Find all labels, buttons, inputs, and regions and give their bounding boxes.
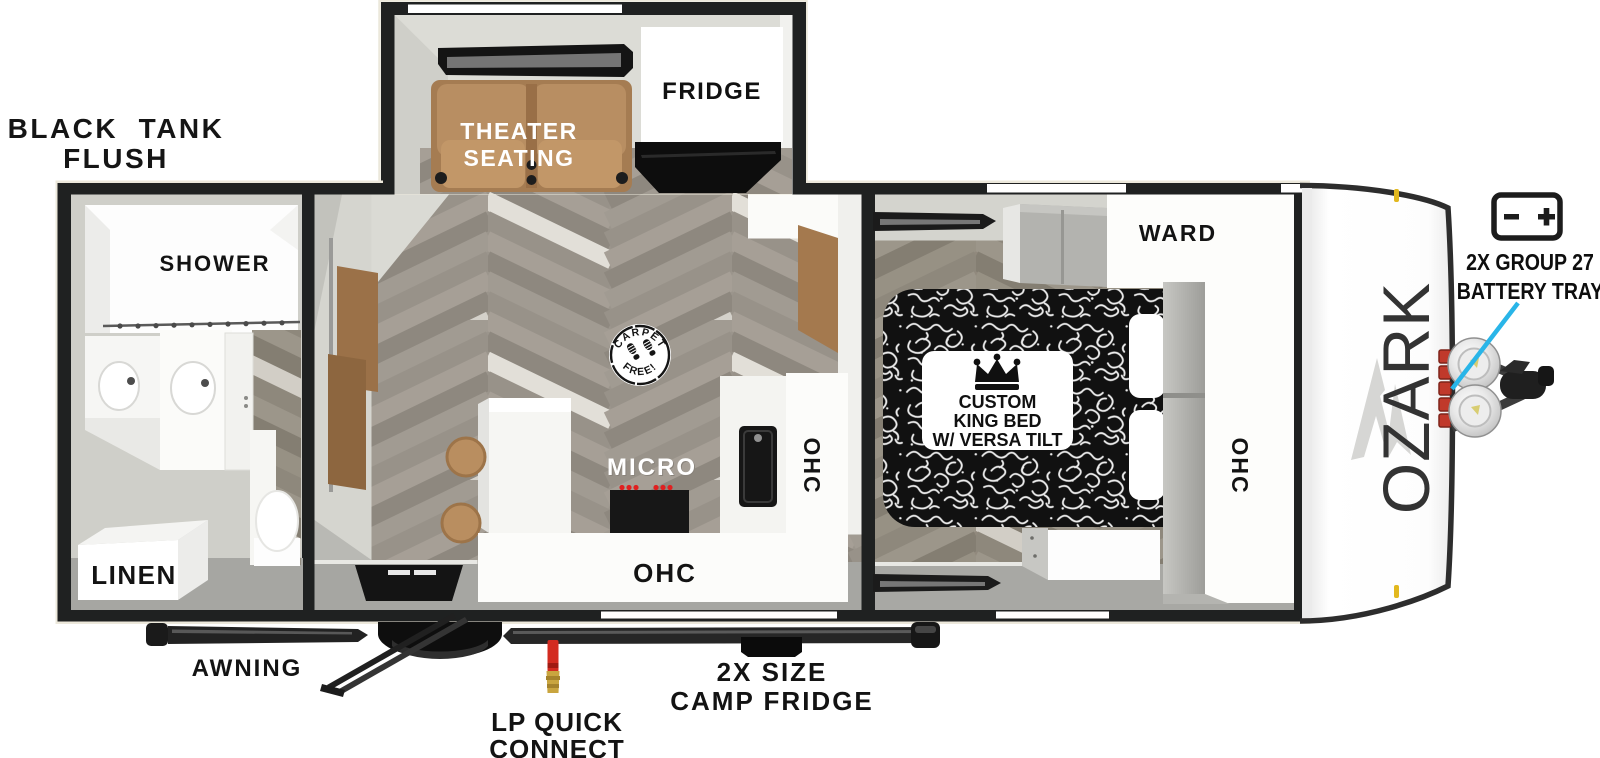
svg-text:OHC: OHC bbox=[799, 437, 825, 494]
svg-text:LP QUICK: LP QUICK bbox=[491, 707, 623, 737]
svg-text:KING BED: KING BED bbox=[953, 411, 1041, 431]
svg-text:MICRO: MICRO bbox=[607, 454, 697, 481]
svg-text:THEATER: THEATER bbox=[460, 118, 577, 144]
svg-text:FLUSH: FLUSH bbox=[63, 143, 169, 174]
svg-text:CAMP FRIDGE: CAMP FRIDGE bbox=[670, 686, 874, 716]
svg-text:SHOWER: SHOWER bbox=[160, 251, 271, 276]
svg-text:BATTERY TRAY: BATTERY TRAY bbox=[1457, 279, 1600, 305]
svg-text:W/ VERSA TILT: W/ VERSA TILT bbox=[933, 430, 1063, 450]
svg-text:LINEN: LINEN bbox=[91, 560, 177, 590]
svg-text:2X SIZE: 2X SIZE bbox=[717, 657, 828, 687]
svg-text:OHC: OHC bbox=[633, 558, 697, 588]
svg-text:AWNING: AWNING bbox=[192, 655, 303, 682]
svg-text:BLACK TANK: BLACK TANK bbox=[8, 113, 225, 144]
svg-text:2X GROUP 27: 2X GROUP 27 bbox=[1466, 250, 1594, 276]
svg-text:SEATING: SEATING bbox=[463, 145, 574, 171]
svg-text:CUSTOM: CUSTOM bbox=[959, 392, 1037, 412]
svg-text:WARD: WARD bbox=[1139, 220, 1217, 246]
svg-text:OHC: OHC bbox=[1227, 437, 1253, 494]
svg-text:CONNECT: CONNECT bbox=[489, 734, 625, 758]
svg-text:FRIDGE: FRIDGE bbox=[662, 78, 762, 105]
svg-text:OZARK: OZARK bbox=[1369, 282, 1443, 514]
